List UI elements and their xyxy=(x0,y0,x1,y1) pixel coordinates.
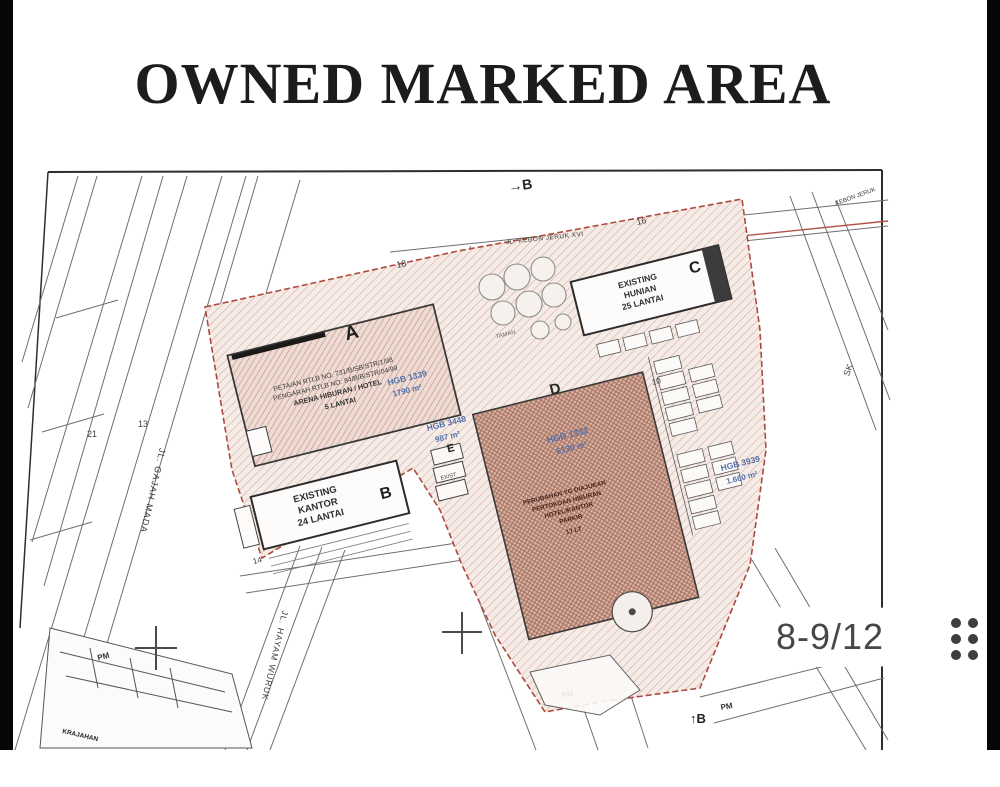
grid-menu-dot xyxy=(951,650,961,660)
section-mark-bottom: ↑B xyxy=(690,711,706,726)
page-indicator-badge: 8-9/12 xyxy=(754,607,906,667)
pm-benchmark-3: PM xyxy=(720,701,734,712)
street-label-gajah-mada: JL. GAJAH MADA xyxy=(138,447,167,534)
grid-menu-dot xyxy=(968,618,978,628)
page-indicator-text: 8-9/12 xyxy=(776,616,884,658)
grid-menu-dot xyxy=(951,634,961,644)
grid-menu-icon[interactable] xyxy=(951,618,978,660)
survey-cross xyxy=(135,612,482,670)
road-width-13: 13 xyxy=(138,419,148,429)
road-width-16: 16 xyxy=(635,215,647,227)
road-width-21: 21 xyxy=(87,429,97,439)
sk-mark: SK xyxy=(841,363,855,378)
grid-menu-dot xyxy=(968,634,978,644)
street-label-hayam-wuruk: JL. HAYAM WURUK xyxy=(260,610,290,702)
right-letterbox xyxy=(987,0,1000,750)
grid-menu-dot xyxy=(968,650,978,660)
road-width-18: 18 xyxy=(395,258,407,270)
grid-menu-dot xyxy=(951,618,961,628)
left-letterbox xyxy=(0,0,13,750)
section-mark-top: →B xyxy=(507,175,533,194)
page-title: OWNED MARKED AREA xyxy=(0,50,966,117)
street-label-kebon-jeruk-short: KEBON JERUK xyxy=(835,187,877,207)
